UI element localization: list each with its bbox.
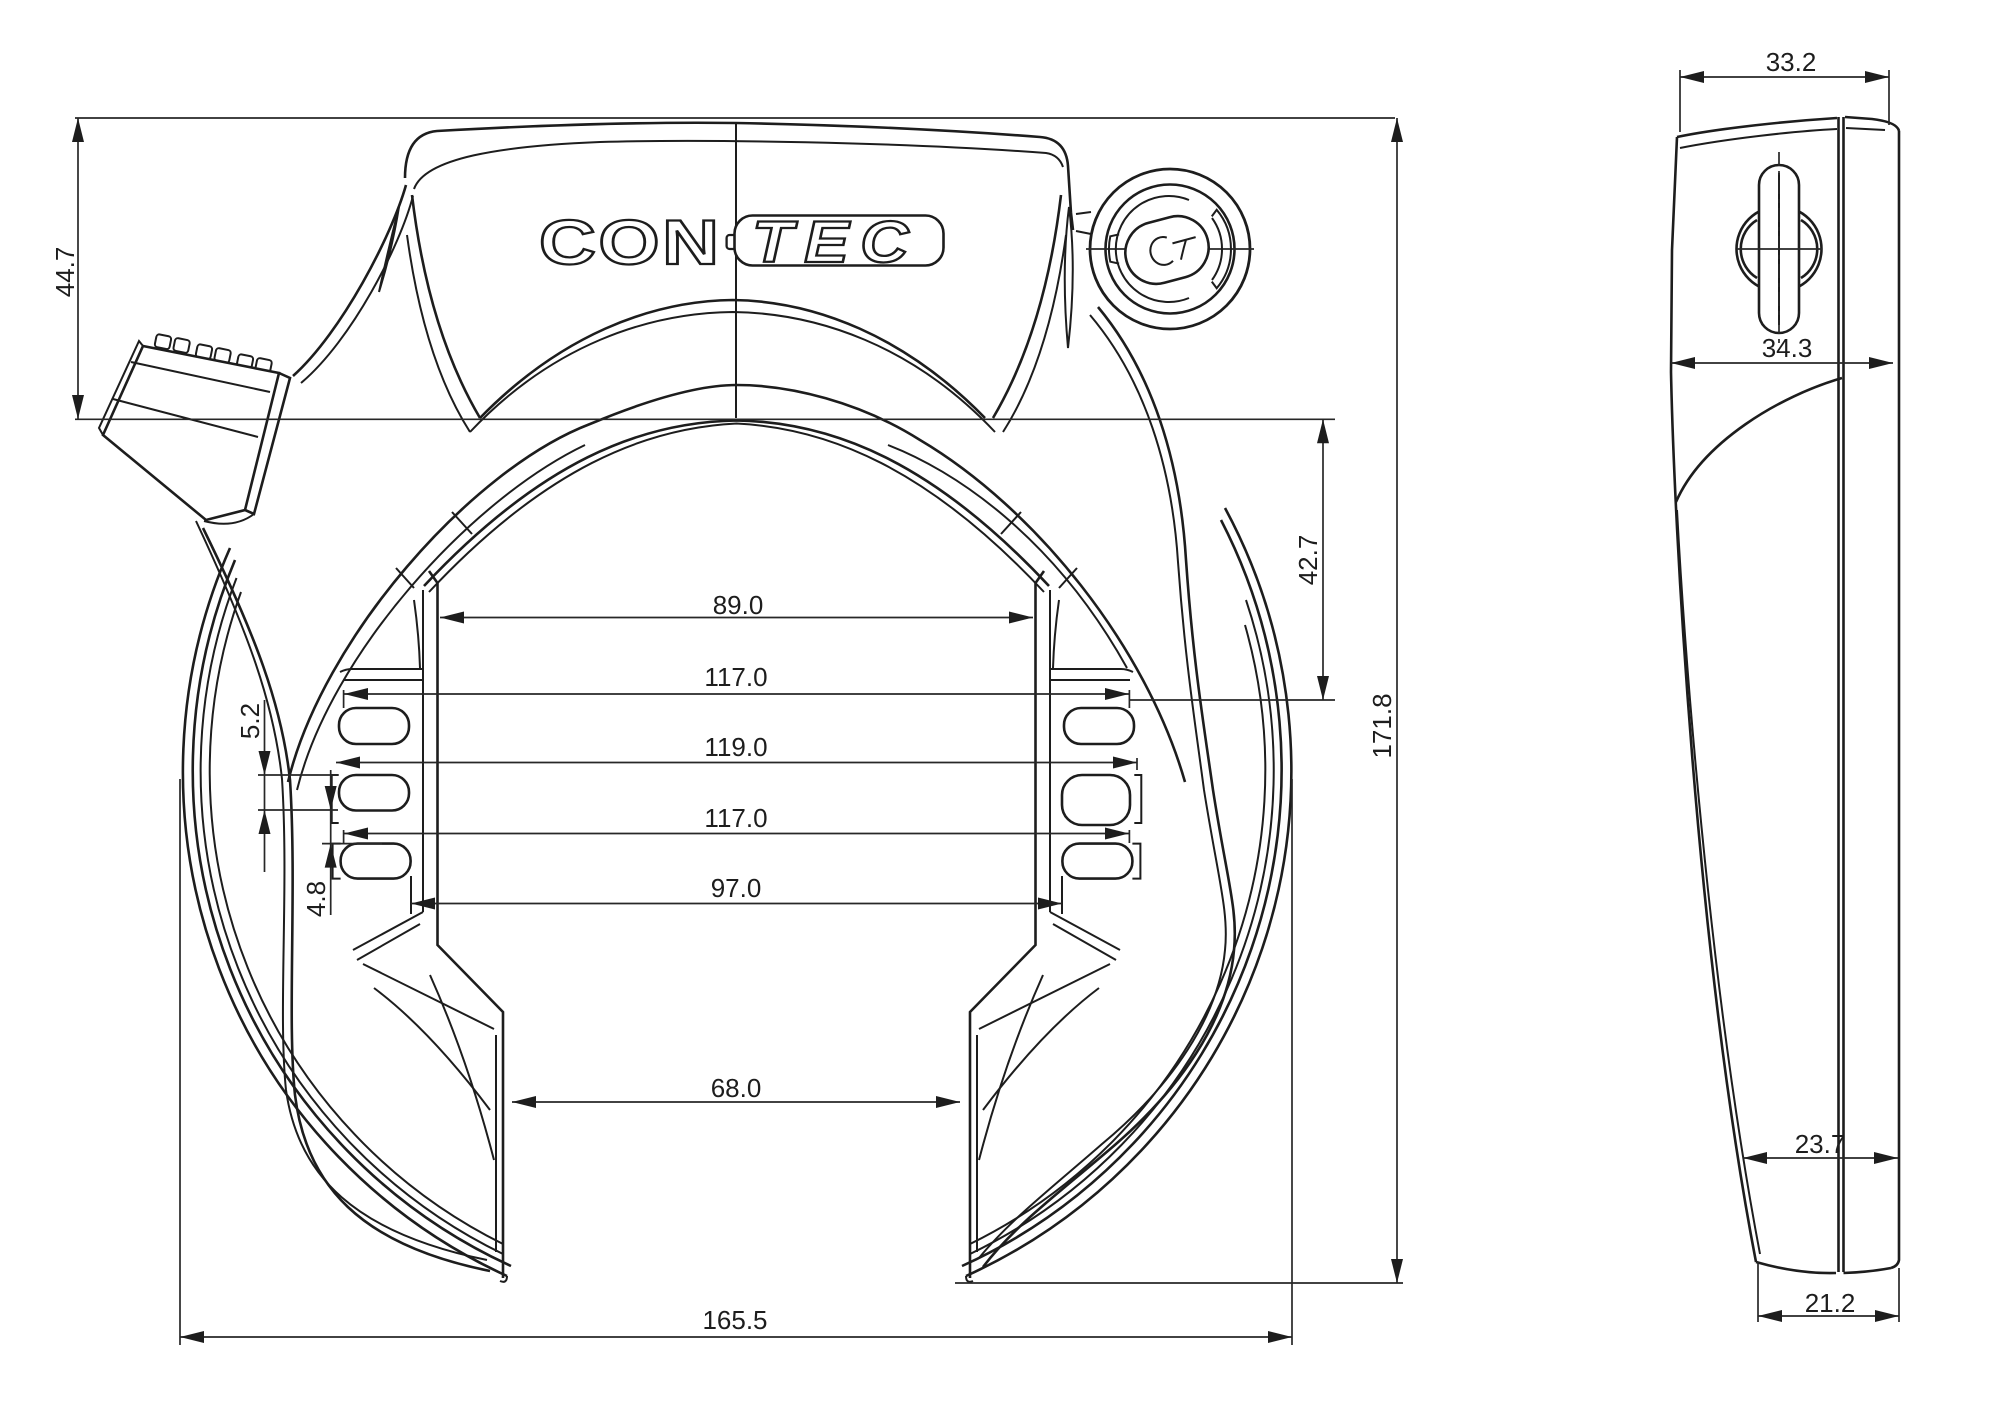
svg-text:4.8: 4.8 (301, 881, 331, 917)
svg-text:68.0: 68.0 (711, 1073, 762, 1103)
svg-text:44.7: 44.7 (50, 247, 80, 298)
svg-text:117.0: 117.0 (704, 662, 767, 692)
svg-text:5.2: 5.2 (235, 703, 265, 739)
svg-text:42.7: 42.7 (1293, 535, 1323, 586)
svg-text:23.7: 23.7 (1795, 1129, 1846, 1159)
svg-text:89.0: 89.0 (713, 590, 764, 620)
svg-text:33.2: 33.2 (1766, 47, 1817, 77)
svg-text:97.0: 97.0 (711, 873, 762, 903)
svg-text:CON: CON (539, 207, 721, 278)
svg-text:TEC: TEC (752, 210, 920, 275)
svg-text:171.8: 171.8 (1367, 693, 1397, 758)
svg-text:117.0: 117.0 (704, 803, 767, 833)
svg-text:119.0: 119.0 (704, 732, 767, 762)
svg-text:21.2: 21.2 (1805, 1288, 1856, 1318)
svg-text:165.5: 165.5 (702, 1305, 767, 1335)
svg-text:34.3: 34.3 (1762, 333, 1813, 363)
